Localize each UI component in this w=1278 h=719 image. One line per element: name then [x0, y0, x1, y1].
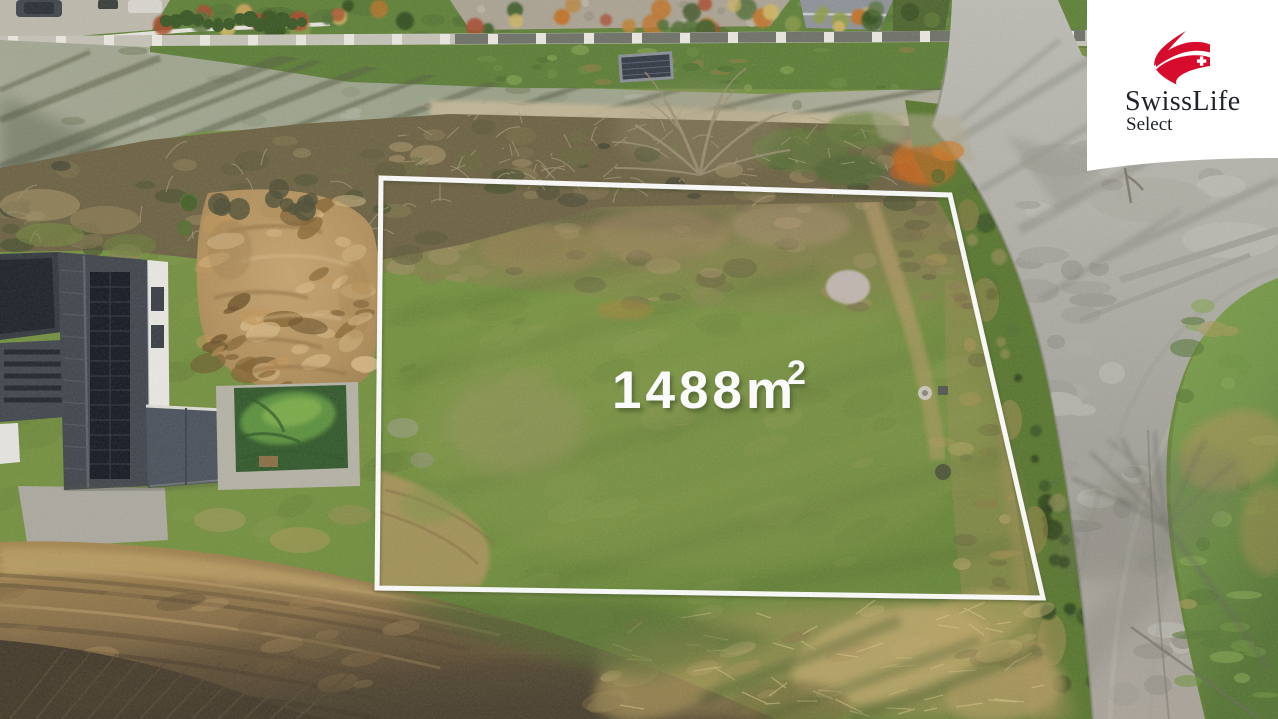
svg-text:SwissLife: SwissLife — [1125, 86, 1241, 117]
svg-text:Select: Select — [1126, 114, 1173, 135]
